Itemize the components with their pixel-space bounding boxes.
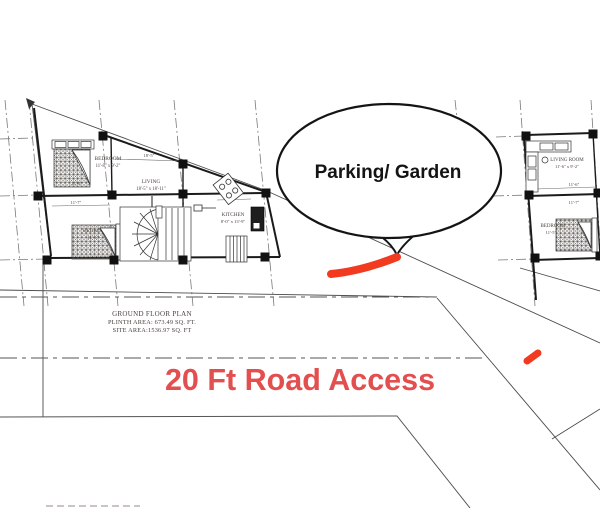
red-marker-strokes: [331, 257, 538, 361]
kitchen-label: KITCHEN: [222, 212, 245, 218]
bath-basin: [156, 206, 162, 218]
kitchen-counter: [194, 205, 216, 211]
dining-table: [226, 236, 247, 262]
bed-top-left: [52, 140, 94, 187]
bed-right-plan: [556, 218, 597, 252]
kitchen-dims: 8'-0" x 13'-9": [221, 219, 246, 224]
road-edge-line: [0, 416, 470, 508]
living-room-label: LIVING ROOM: [550, 158, 584, 163]
dim-right-w2: 11'-7": [569, 200, 580, 205]
marker-stroke-bubble-tail: [331, 257, 397, 274]
marker-stroke-small: [527, 353, 538, 361]
dim-row-width: 11'-7": [71, 200, 82, 205]
dim-right-w1: 11'-6": [569, 182, 580, 187]
kitchen-appliance: [251, 207, 264, 231]
bed-bottom-left: [72, 224, 121, 260]
title-line3: SITE AREA:1536.97 SQ. FT: [113, 327, 192, 334]
staircase: [120, 207, 191, 261]
road-access-label: 20 Ft Road Access: [165, 363, 435, 397]
living-label: LIVING: [142, 179, 161, 185]
bedroom-top-label: BEDROOM: [95, 156, 122, 162]
north-arrowhead: [26, 98, 35, 109]
right-floor-plan: LIVING ROOM 11'-6" x 9'-2" 11'-6" 11'-7"…: [522, 130, 600, 301]
dim-living-width: 18'-5": [144, 153, 155, 158]
title-line1: GROUND FLOOR PLAN: [112, 310, 192, 318]
bedroom-top-dims: 11'-8" x 9'-2": [96, 164, 121, 169]
road-lines: [0, 297, 483, 508]
speech-bubble: Parking/ Garden: [277, 104, 501, 255]
title-block: GROUND FLOOR PLAN PLINTH AREA: 673.49 SQ…: [108, 310, 196, 334]
blueprint-canvas: BEDROOM 11'-8" x 9'-2" LIVING 18'-5" x 1…: [0, 0, 600, 508]
living-dims: 18'-5" x 18'-11": [136, 187, 166, 192]
title-line2: PLINTH AREA: 673.49 SQ. FT.: [108, 319, 196, 326]
left-floor-plan: BEDROOM 11'-8" x 9'-2" LIVING 18'-5" x 1…: [34, 108, 281, 265]
speech-bubble-label: Parking/ Garden: [315, 162, 462, 183]
right-bedroom-dims: 11'-5": [546, 230, 557, 235]
living-room-dims: 11'-6" x 9'-2": [555, 164, 579, 169]
